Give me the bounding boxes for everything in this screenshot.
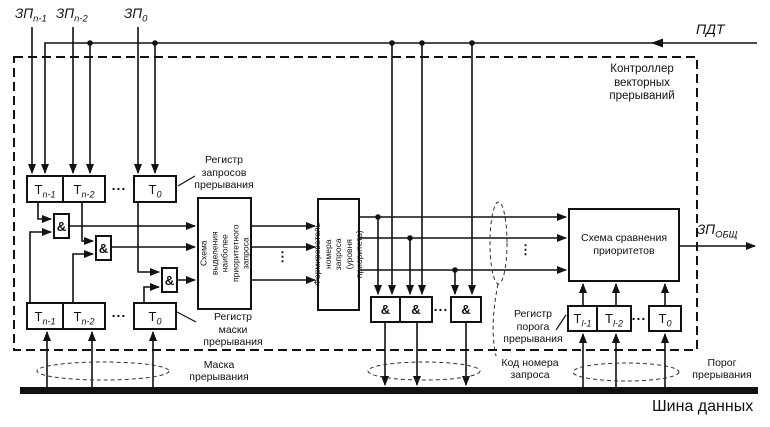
and-gate-left-3: &	[161, 267, 178, 293]
data-bus	[20, 387, 758, 394]
priority-comparator-label: Схема сравнения приоритетов	[581, 232, 667, 258]
code-lines-ellipse	[490, 202, 507, 284]
and-gate-mid-3: &	[450, 296, 482, 323]
request-register-caption: Регистр запросов прерывания	[185, 154, 263, 192]
and-gate-mid-2: &	[399, 296, 433, 323]
threshold-register-cell-0: Т0	[648, 305, 682, 332]
threshold-register-cell-l-2: Тl-2	[596, 305, 632, 332]
signal-label-pdt: ПДТ	[696, 21, 725, 37]
request-register-ellipsis: ...	[106, 177, 132, 193]
signal-label-zp-common: ЗПОБЩ	[697, 222, 737, 237]
comparator-input-ellipsis: ⋮	[519, 243, 532, 256]
and-gate-left-2: &	[95, 235, 112, 261]
mask-register-ellipsis: ...	[106, 304, 132, 320]
mask-register-cell-n-2: Тn-2	[62, 302, 106, 330]
threshold-bundle-ellipse	[573, 363, 679, 381]
and-gate-mid-1: &	[370, 296, 401, 323]
request-register-cell-n-1: Тn-1	[26, 175, 64, 203]
request-register-cell-n-2: Тn-2	[62, 175, 106, 203]
threshold-register-cell-l-1: Тl-1	[567, 305, 598, 332]
code-bundle-label: Код номера запроса	[491, 357, 569, 381]
mask-bundle-ellipse	[37, 362, 169, 380]
mask-register-caption: Регистр маски прерывания	[193, 311, 273, 349]
signal-label-zp-n-1: ЗПn-1	[15, 6, 47, 21]
mask-register-cell-0: Т0	[133, 302, 177, 330]
request-number-former-block: Формирователь номера запроса (уровня при…	[317, 198, 360, 311]
threshold-bundle-label: Порог прерывания	[683, 357, 761, 381]
threshold-register-ellipsis: ...	[630, 307, 648, 323]
priority-selector-block: Схема выделения наиболее приоритетного з…	[197, 197, 252, 310]
priority-comparator-block: Схема сравнения приоритетов	[568, 208, 680, 282]
selector-output-ellipsis: ⋮	[276, 250, 289, 263]
data-bus-label: Шина данных	[652, 398, 753, 416]
signal-label-zp-0: ЗП0	[124, 6, 147, 21]
code-bundle-ellipse	[368, 362, 480, 380]
priority-selector-label: Схема выделения наиболее приоритетного з…	[198, 225, 251, 282]
mask-register-cell-n-1: Тn-1	[26, 302, 64, 330]
threshold-register-caption: Регистр порога прерывания	[497, 308, 569, 346]
and-gate-left-1: &	[53, 213, 70, 239]
mid-gates-ellipsis: ...	[431, 298, 451, 314]
request-register-cell-0: Т0	[133, 175, 177, 203]
request-number-former-label: Формирователь номера запроса (уровня при…	[312, 223, 365, 286]
controller-caption: Контроллер векторных прерываний	[590, 63, 694, 104]
pdt-arrowhead	[651, 39, 663, 48]
vector-interrupt-controller-diagram: ЗПn-1 ЗПn-2 ЗП0 ПДТ ЗПОБЩ Контроллер век…	[0, 0, 770, 427]
signal-label-zp-n-2: ЗПn-2	[56, 6, 88, 21]
mask-bundle-label: Маска прерывания	[180, 359, 258, 383]
